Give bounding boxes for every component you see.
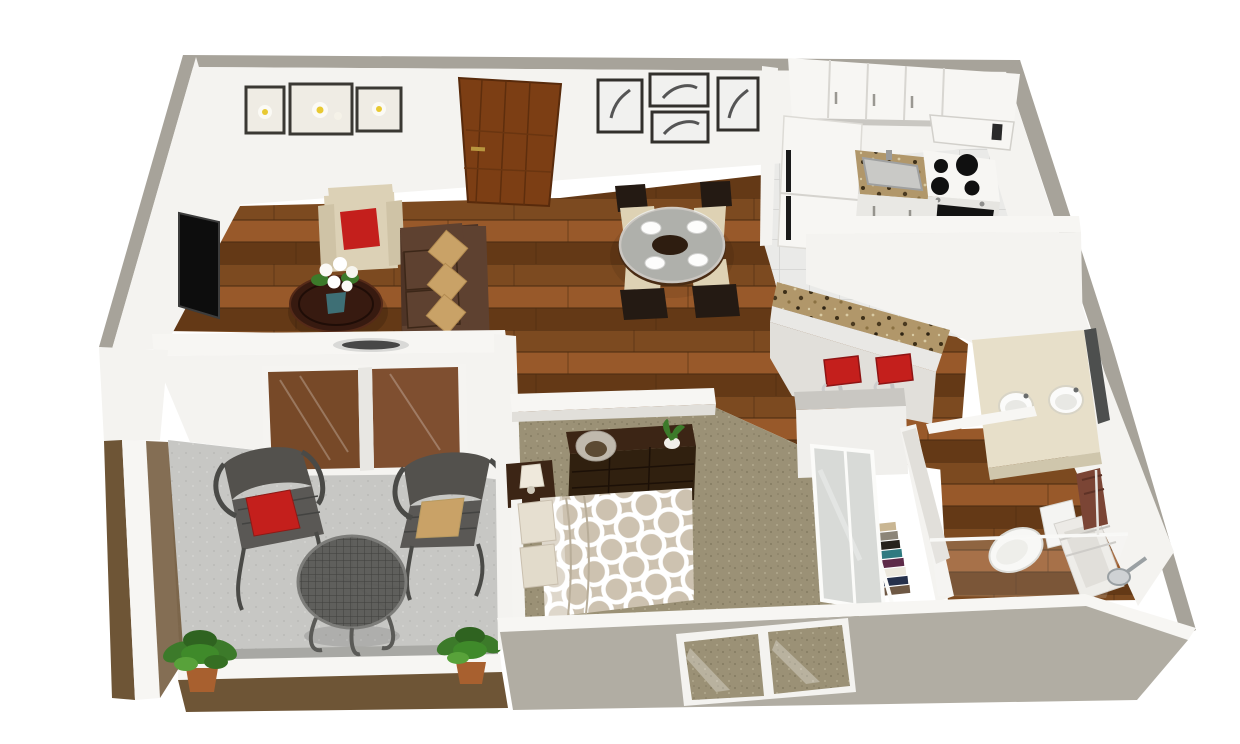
plate: [688, 254, 708, 267]
flower-center: [262, 109, 268, 115]
pebbles: [334, 112, 342, 120]
lily: [333, 257, 347, 271]
bed-pillow: [518, 500, 556, 544]
shower-glass: [930, 534, 1128, 598]
plant-pot: [456, 662, 486, 684]
frond: [174, 657, 198, 671]
tan-seat-pillow: [416, 498, 464, 538]
slider-mullion: [358, 367, 374, 471]
bw-print-frame: [652, 112, 708, 142]
bw-print-frame: [598, 80, 642, 132]
patio-table: [298, 536, 406, 654]
fridge-handle: [786, 150, 791, 192]
front-door: [459, 78, 561, 206]
red-seat-pillow: [246, 490, 300, 536]
floor-plan-canvas: [0, 0, 1240, 744]
burner: [965, 181, 980, 196]
faucet: [1024, 394, 1029, 399]
plate: [687, 221, 707, 234]
chair-back: [700, 181, 732, 208]
burner: [934, 159, 948, 173]
wall-niche-inner: [342, 341, 400, 350]
lamp-base: [527, 486, 535, 494]
mirrored-sliding-doors: [812, 446, 884, 610]
faucet: [1074, 388, 1079, 393]
floor-plan-render: [0, 0, 1240, 744]
flower-center: [376, 106, 382, 112]
door-handle: [471, 147, 485, 152]
table-centerpiece: [652, 235, 688, 255]
flower-center: [317, 107, 324, 114]
frond: [204, 655, 228, 669]
lamp-shade: [520, 464, 544, 488]
bw-print-frame: [650, 74, 708, 106]
burner: [956, 154, 978, 176]
red-throw-pillow: [340, 208, 380, 250]
sink-basin: [1055, 394, 1077, 410]
divider-wall-cap: [152, 330, 508, 356]
flower-print-frame: [290, 84, 352, 134]
plant-pot: [186, 668, 218, 692]
shower-head-face: [1108, 569, 1130, 585]
kitchen-faucet: [886, 150, 892, 160]
lily: [328, 276, 341, 289]
window-pane: [768, 625, 850, 694]
lily: [320, 264, 333, 277]
lily: [346, 266, 358, 278]
armchair: [318, 184, 405, 272]
oven-knob: [980, 202, 985, 207]
frond: [447, 652, 469, 664]
living-room-wall-art: [246, 84, 401, 134]
stool-seat: [876, 354, 913, 384]
plate: [641, 222, 661, 235]
flower-print-frame: [357, 88, 401, 131]
lily: [342, 281, 353, 292]
microwave-display: [991, 124, 1002, 141]
vanity-sink: [1049, 386, 1083, 414]
flower-vase: [326, 292, 346, 314]
flower-print-frame: [246, 87, 284, 133]
plate: [645, 257, 665, 270]
armchair-arm: [318, 204, 337, 270]
bar-wall-cap: [806, 216, 1081, 234]
candle: [585, 441, 607, 457]
stool-seat: [824, 356, 861, 386]
burner: [931, 177, 949, 195]
west-wall-end-cap: [99, 347, 168, 442]
chair-back: [620, 288, 668, 320]
bed-pillow: [520, 544, 558, 588]
fridge-handle: [786, 196, 791, 240]
bw-print-frame: [718, 78, 758, 130]
tv-screen: [179, 213, 219, 318]
chair-back: [692, 284, 740, 318]
entry: [459, 78, 561, 206]
